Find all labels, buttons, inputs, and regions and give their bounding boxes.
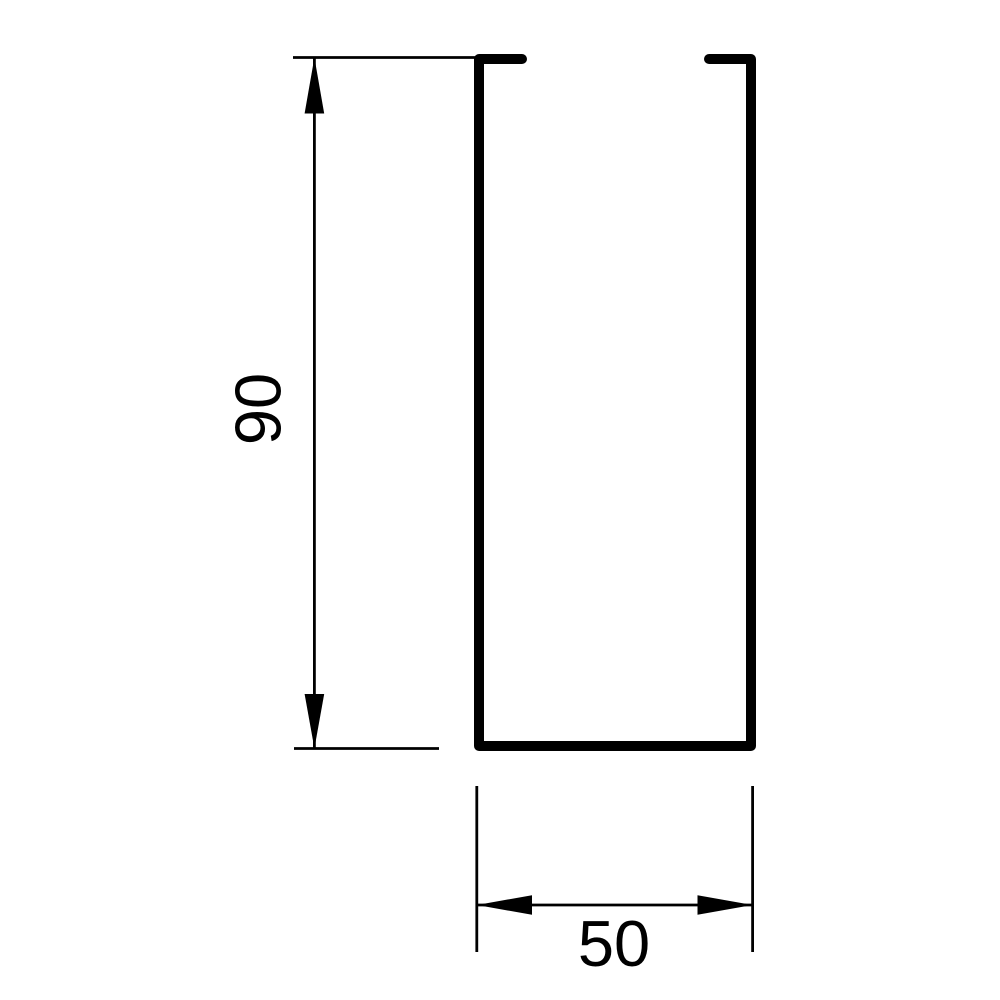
svg-text:90: 90 [222, 373, 295, 445]
svg-text:50: 50 [578, 907, 650, 980]
